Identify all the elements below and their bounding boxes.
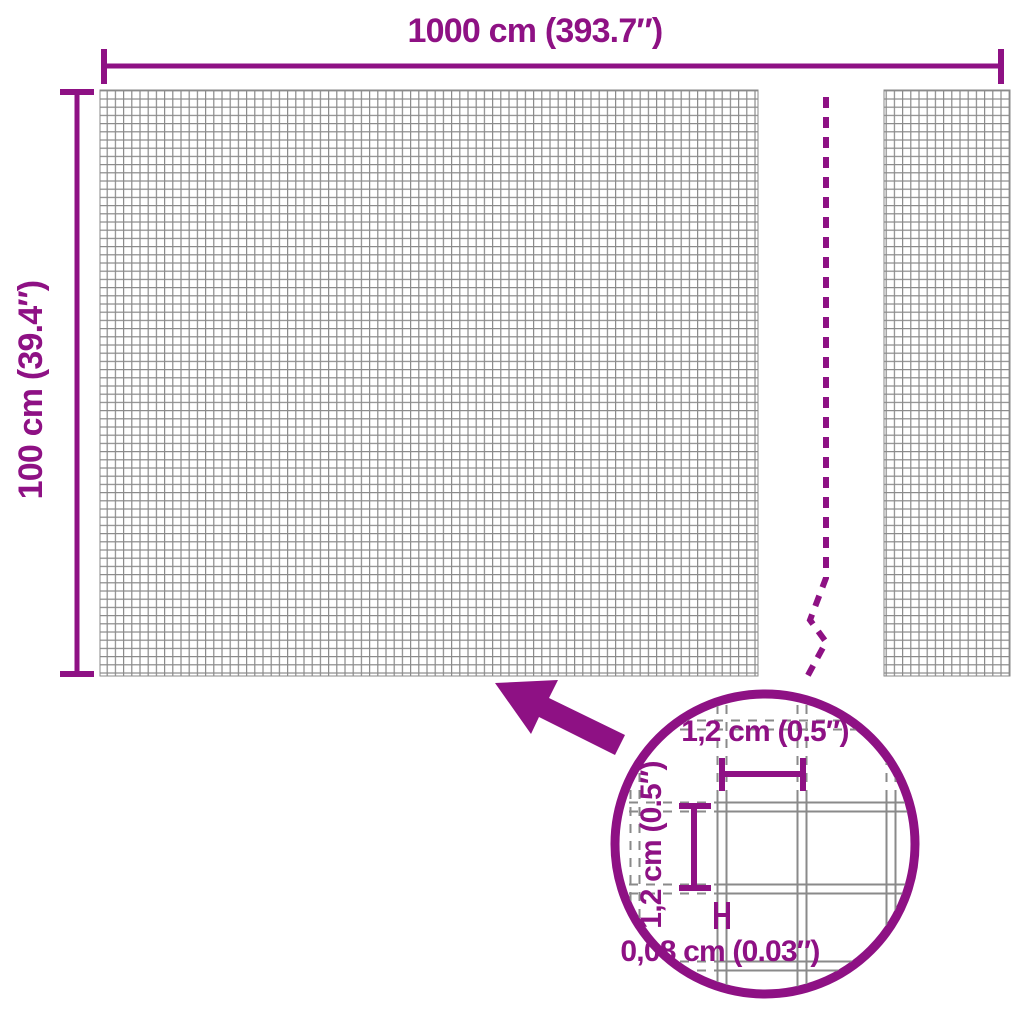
cell-width-label: 1,2 cm (0.5″) [681, 717, 848, 747]
break-line [807, 97, 826, 677]
width-dimension-label: 1000 cm (393.7″) [408, 14, 663, 48]
diagram-canvas [0, 0, 1024, 1024]
wire-thickness-label: 0,08 cm (0.03″) [620, 937, 819, 967]
dimension-diagram: 1000 cm (393.7″) 100 cm (39.4″) 1,2 cm (… [0, 0, 1024, 1024]
mesh-panel-right [884, 90, 1010, 676]
height-dimension-line [60, 92, 94, 674]
zoom-arrow [495, 680, 625, 755]
cell-height-label: 1,2 cm (0.5″) [637, 761, 667, 928]
mesh-panel-left [100, 90, 758, 676]
width-dimension-line [104, 49, 1001, 84]
height-dimension-label: 100 cm (39.4″) [14, 281, 48, 500]
